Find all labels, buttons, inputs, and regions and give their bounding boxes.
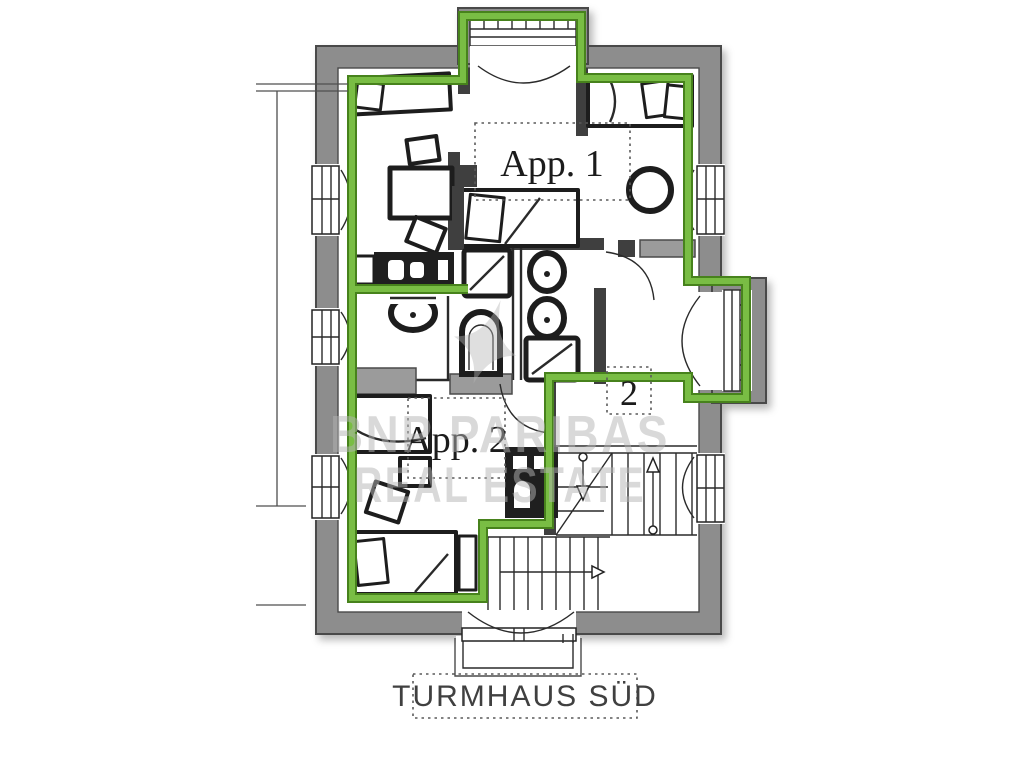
floor-plan-page: App. 1 App. 2 2 TURMHAUS SÜD BNP PARIBAS… bbox=[0, 0, 1024, 768]
washbasin-app2 bbox=[388, 294, 438, 330]
bed-center bbox=[452, 186, 578, 248]
building-title: TURMHAUS SÜD bbox=[392, 674, 658, 718]
bed-top-right bbox=[588, 76, 692, 126]
nightstand bbox=[455, 165, 477, 187]
desk-app2 bbox=[352, 368, 416, 394]
bed-app2-lower bbox=[350, 532, 476, 594]
round-table bbox=[629, 169, 671, 211]
building-title-text: TURMHAUS SÜD bbox=[392, 680, 658, 713]
watermark-line2: REAL ESTATE bbox=[354, 457, 646, 513]
apartment1-label-text: App. 1 bbox=[500, 143, 603, 185]
watermark-line1: BNP PARIBAS bbox=[330, 406, 670, 464]
floor-plan: App. 1 App. 2 2 TURMHAUS SÜD BNP PARIBAS… bbox=[0, 0, 1024, 768]
shower-1 bbox=[464, 250, 510, 296]
right-bay bbox=[696, 278, 766, 403]
